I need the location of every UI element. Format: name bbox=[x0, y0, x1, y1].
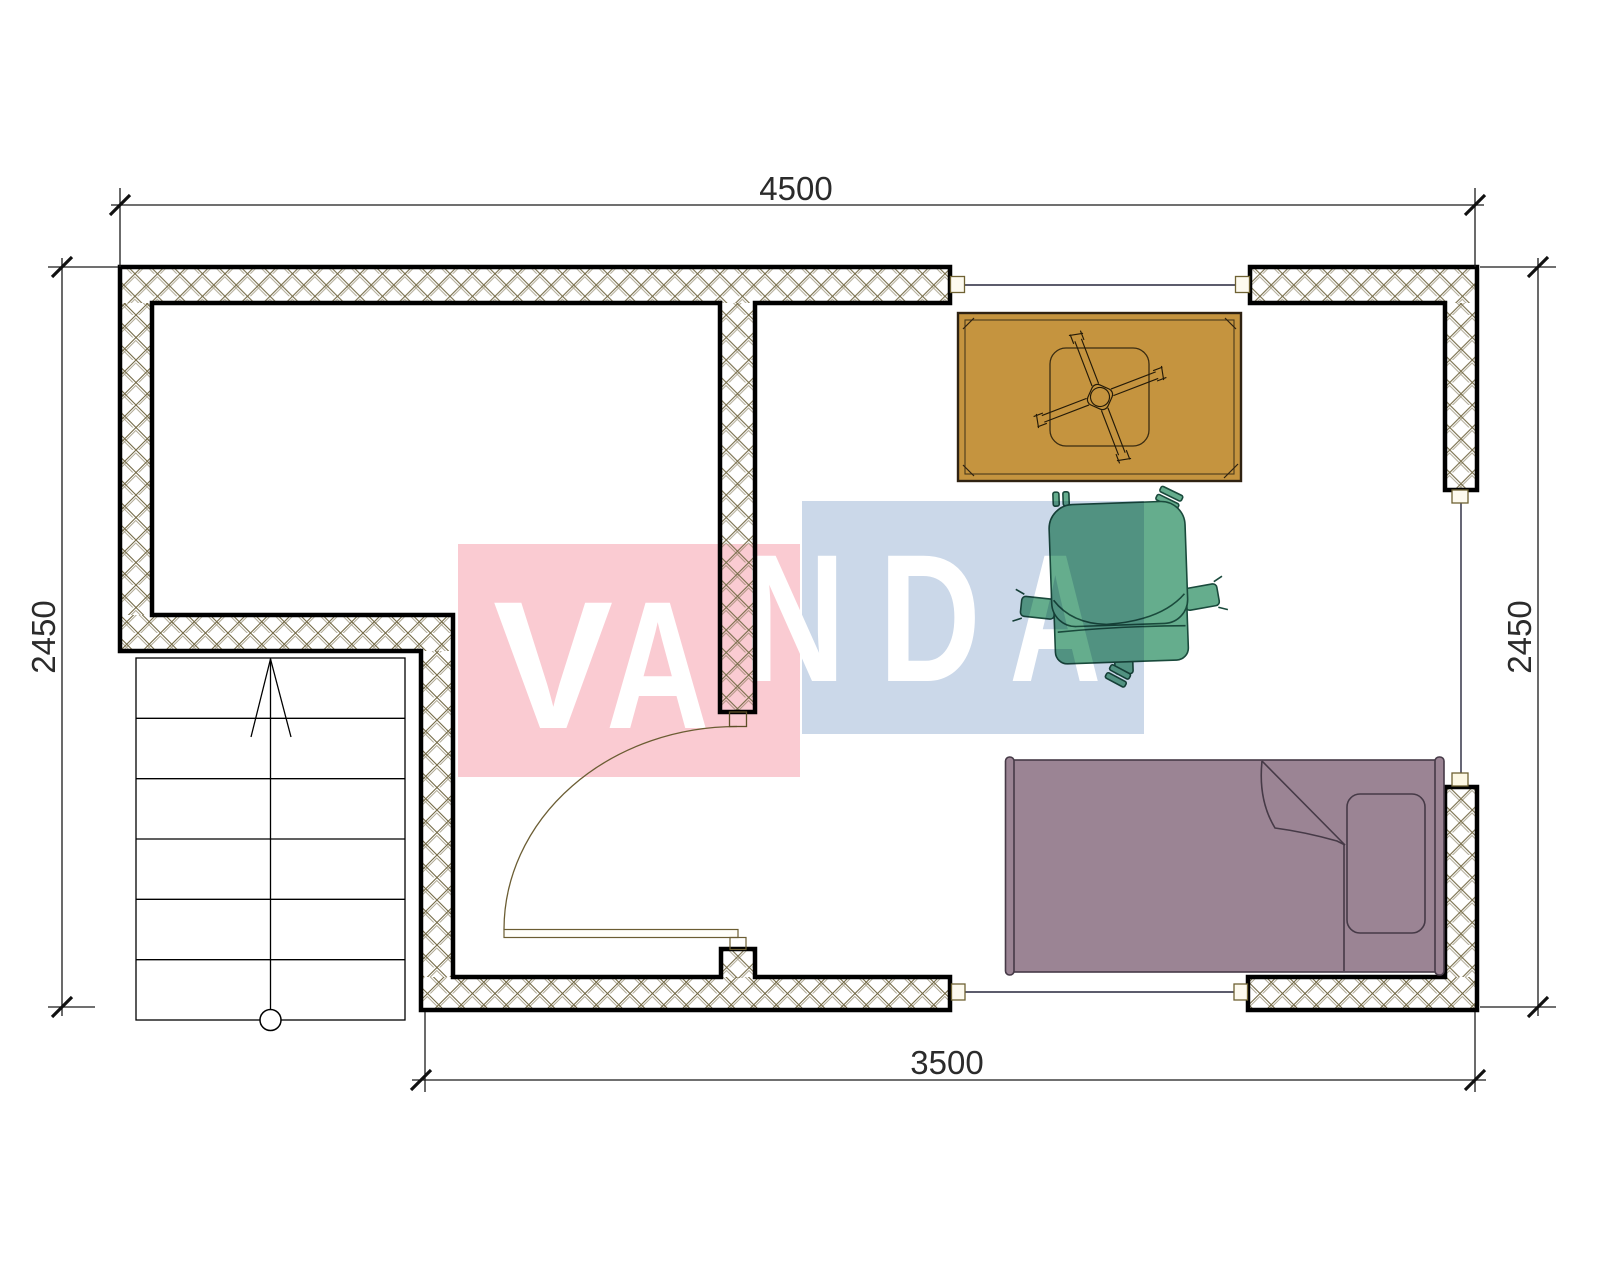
svg-text:A: A bbox=[606, 564, 709, 767]
svg-text:V: V bbox=[493, 564, 613, 767]
svg-text:D: D bbox=[879, 516, 981, 720]
svg-text:N: N bbox=[743, 516, 846, 720]
svg-text:4500: 4500 bbox=[759, 170, 832, 207]
svg-text:3500: 3500 bbox=[910, 1044, 983, 1081]
svg-text:2450: 2450 bbox=[25, 600, 62, 673]
svg-text:2450: 2450 bbox=[1501, 600, 1538, 673]
